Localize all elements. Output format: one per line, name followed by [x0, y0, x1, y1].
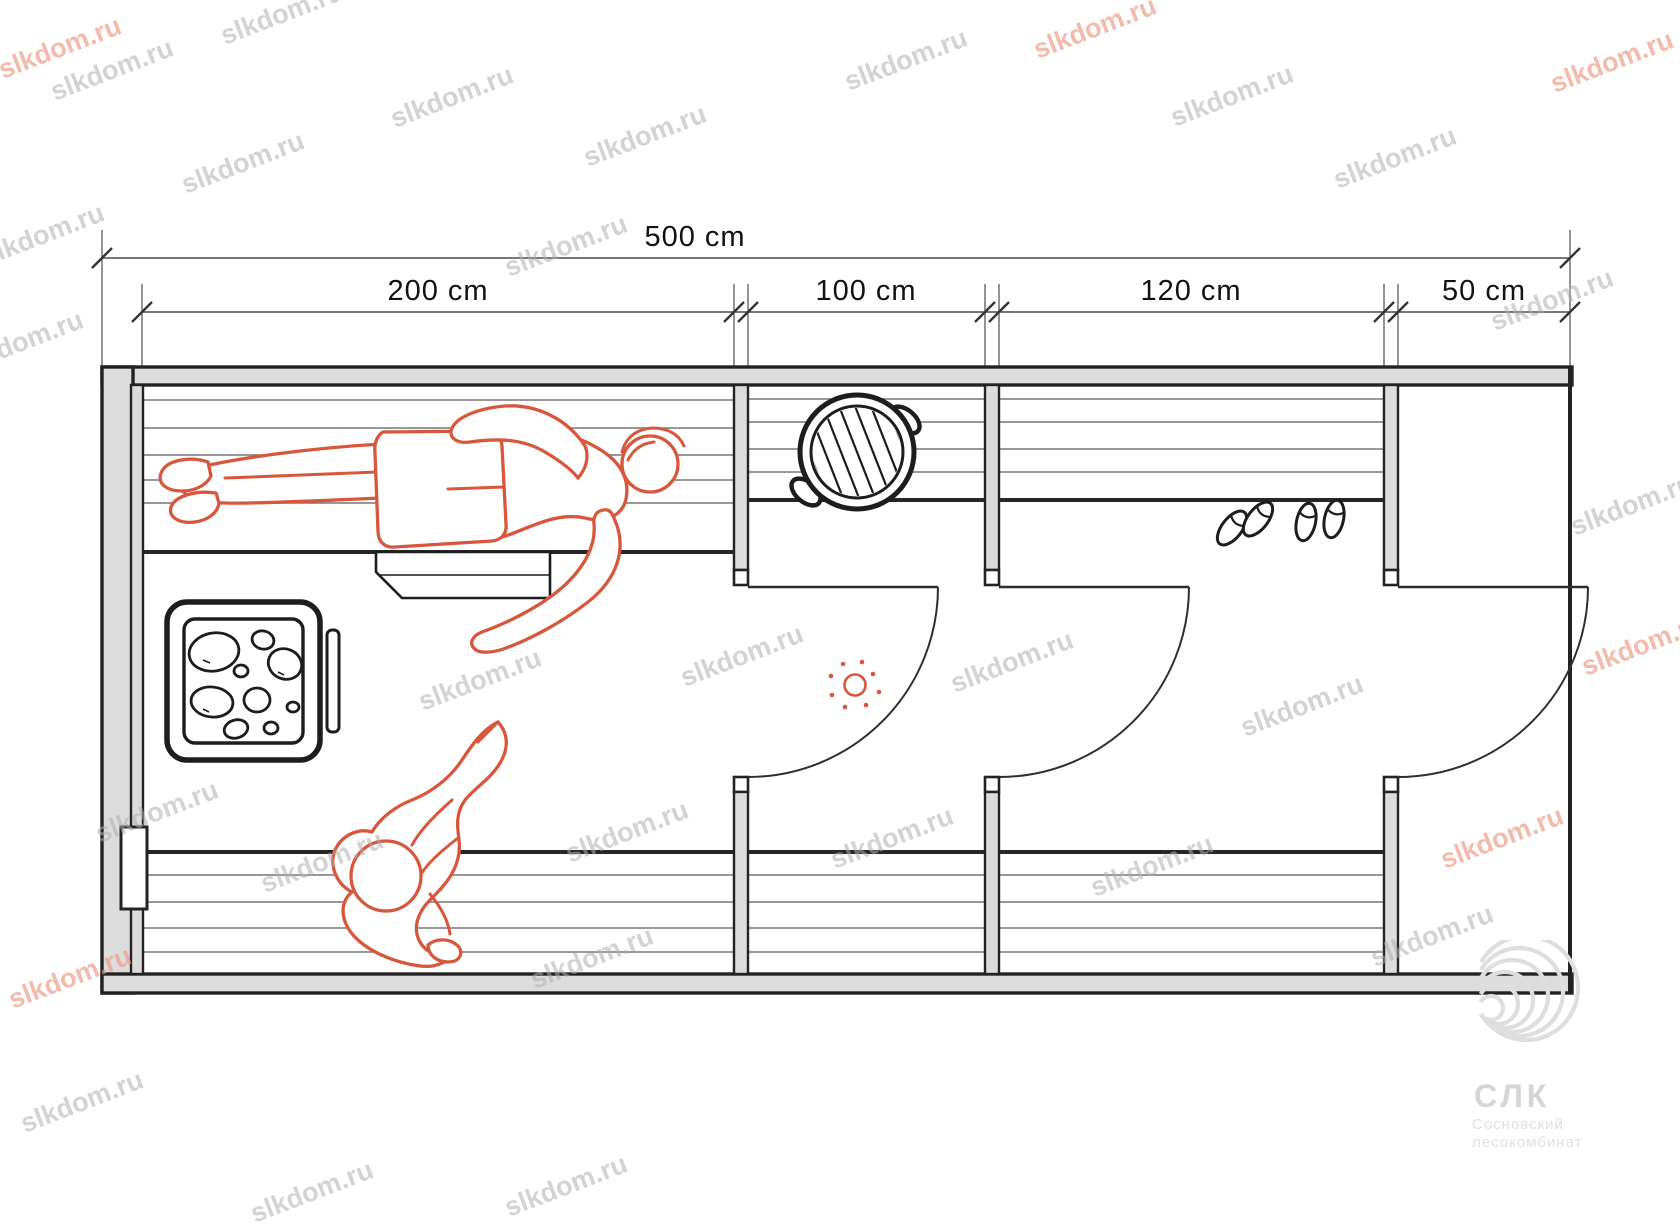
- sauna-floor-plan: 500 cm 200 cm 100 cm 120 cm 50 cm: [0, 0, 1680, 1225]
- left-wall-window: [121, 827, 147, 909]
- drain-symbol-icon: [829, 660, 882, 710]
- door-sauna: [748, 587, 938, 777]
- partition-wall-a: [734, 385, 748, 974]
- dim-120-label: 120 cm: [1140, 275, 1241, 307]
- sauna-stove-icon: [167, 602, 320, 760]
- stove-guard-icon: [327, 630, 339, 732]
- partition-wall-c: [1384, 385, 1398, 974]
- partition-wall-b: [985, 385, 999, 974]
- dimension-layer: 500 cm 200 cm 100 cm 120 cm 50 cm: [92, 221, 1580, 367]
- dim-200-label: 200 cm: [387, 275, 488, 307]
- sitting-person-figure: [333, 722, 506, 966]
- floor-plan-page: 500 cm 200 cm 100 cm 120 cm 50 cm: [0, 0, 1680, 1225]
- dim-50-label: 50 cm: [1442, 275, 1526, 307]
- door-entrance: [1398, 587, 1588, 777]
- wash-tub-icon: [787, 395, 925, 511]
- top-wall: [102, 367, 1572, 385]
- bench-step: [376, 552, 550, 598]
- door-washroom: [999, 587, 1189, 777]
- slippers-icon: [1212, 497, 1347, 550]
- dim-total-label: 500 cm: [644, 221, 745, 253]
- dim-100-label: 100 cm: [815, 275, 916, 307]
- bottom-wall: [102, 974, 1572, 993]
